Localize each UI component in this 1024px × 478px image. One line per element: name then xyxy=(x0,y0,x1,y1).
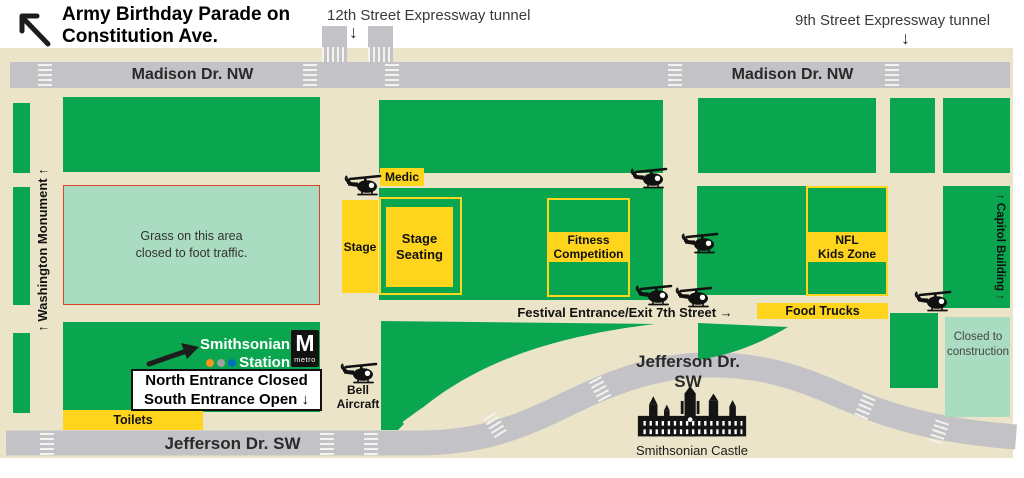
crosswalk xyxy=(320,433,334,455)
metro-silver-line-dot xyxy=(217,359,225,367)
tunnel-12th-arrow-icon: ↓ xyxy=(349,22,358,43)
metro-logo-icon: M metro xyxy=(291,330,319,367)
park-block xyxy=(379,100,663,173)
washington-monument-label: ↑ Washington Monument ↑ xyxy=(35,162,51,338)
park-block xyxy=(13,187,30,305)
tunnel-ramp xyxy=(368,26,393,62)
crosswalk xyxy=(385,64,399,86)
tunnel-ramp xyxy=(322,26,347,62)
map-title: Army Birthday Parade on Constitution Ave… xyxy=(62,4,290,48)
park-block xyxy=(890,313,938,388)
capitol-building-label: ↑ Capitol Building ↑ xyxy=(992,185,1008,309)
helicopter-icon xyxy=(635,283,673,306)
bell-aircraft-label: Bell Aircraft xyxy=(323,383,393,411)
street-label-jefferson-left: Jefferson Dr. SW xyxy=(160,434,305,454)
helicopter-icon xyxy=(630,166,668,189)
entrance-status-box: North Entrance Closed South Entrance Ope… xyxy=(131,369,322,411)
park-block xyxy=(63,97,320,172)
metro-blue-line-dot xyxy=(228,359,236,367)
crosswalk xyxy=(885,64,899,86)
zone-nfl-label: NFL Kids Zone xyxy=(804,233,890,261)
crosswalk xyxy=(303,64,317,86)
tunnel-9th-arrow-icon: ↓ xyxy=(901,28,910,49)
crosswalk xyxy=(38,64,52,86)
helicopter-icon xyxy=(675,285,713,308)
park-block xyxy=(698,98,876,173)
parade-direction-arrow-icon xyxy=(8,4,54,48)
zone-food-trucks: Food Trucks xyxy=(757,303,888,319)
helicopter-icon xyxy=(681,231,719,254)
zone-medic: Medic xyxy=(380,168,424,186)
crosswalk xyxy=(40,433,54,455)
park-block xyxy=(890,98,935,173)
crosswalk xyxy=(668,64,682,86)
street-label-madison-right: Madison Dr. NW xyxy=(725,66,860,84)
zone-toilets: Toilets xyxy=(63,410,203,430)
station-pointer-arrow-icon xyxy=(146,340,208,368)
helicopter-icon xyxy=(344,173,382,196)
construction-note: Closed to construction xyxy=(940,330,1016,360)
tunnel-9th-label: 9th Street Expressway tunnel xyxy=(795,12,990,29)
parade-map: Madison Dr. NW Madison Dr. NW Grass on t… xyxy=(0,0,1024,478)
helicopter-icon xyxy=(914,289,952,312)
park-block xyxy=(13,103,30,173)
street-label-madison-left: Madison Dr. NW xyxy=(125,66,260,84)
crosswalk xyxy=(364,433,378,455)
grass-closed-note: Grass on this area closed to foot traffi… xyxy=(103,228,280,262)
smithsonian-castle-icon xyxy=(632,386,752,442)
park-block xyxy=(943,98,1010,173)
zone-stage-seating-label: Stage Seating xyxy=(386,231,453,263)
helicopter-icon xyxy=(340,361,378,384)
park-block xyxy=(13,333,30,413)
zone-fitness-label: Fitness Competition xyxy=(545,233,632,261)
smithsonian-castle-label: Smithsonian Castle xyxy=(622,443,762,458)
zone-stage-label: Stage xyxy=(340,240,380,254)
